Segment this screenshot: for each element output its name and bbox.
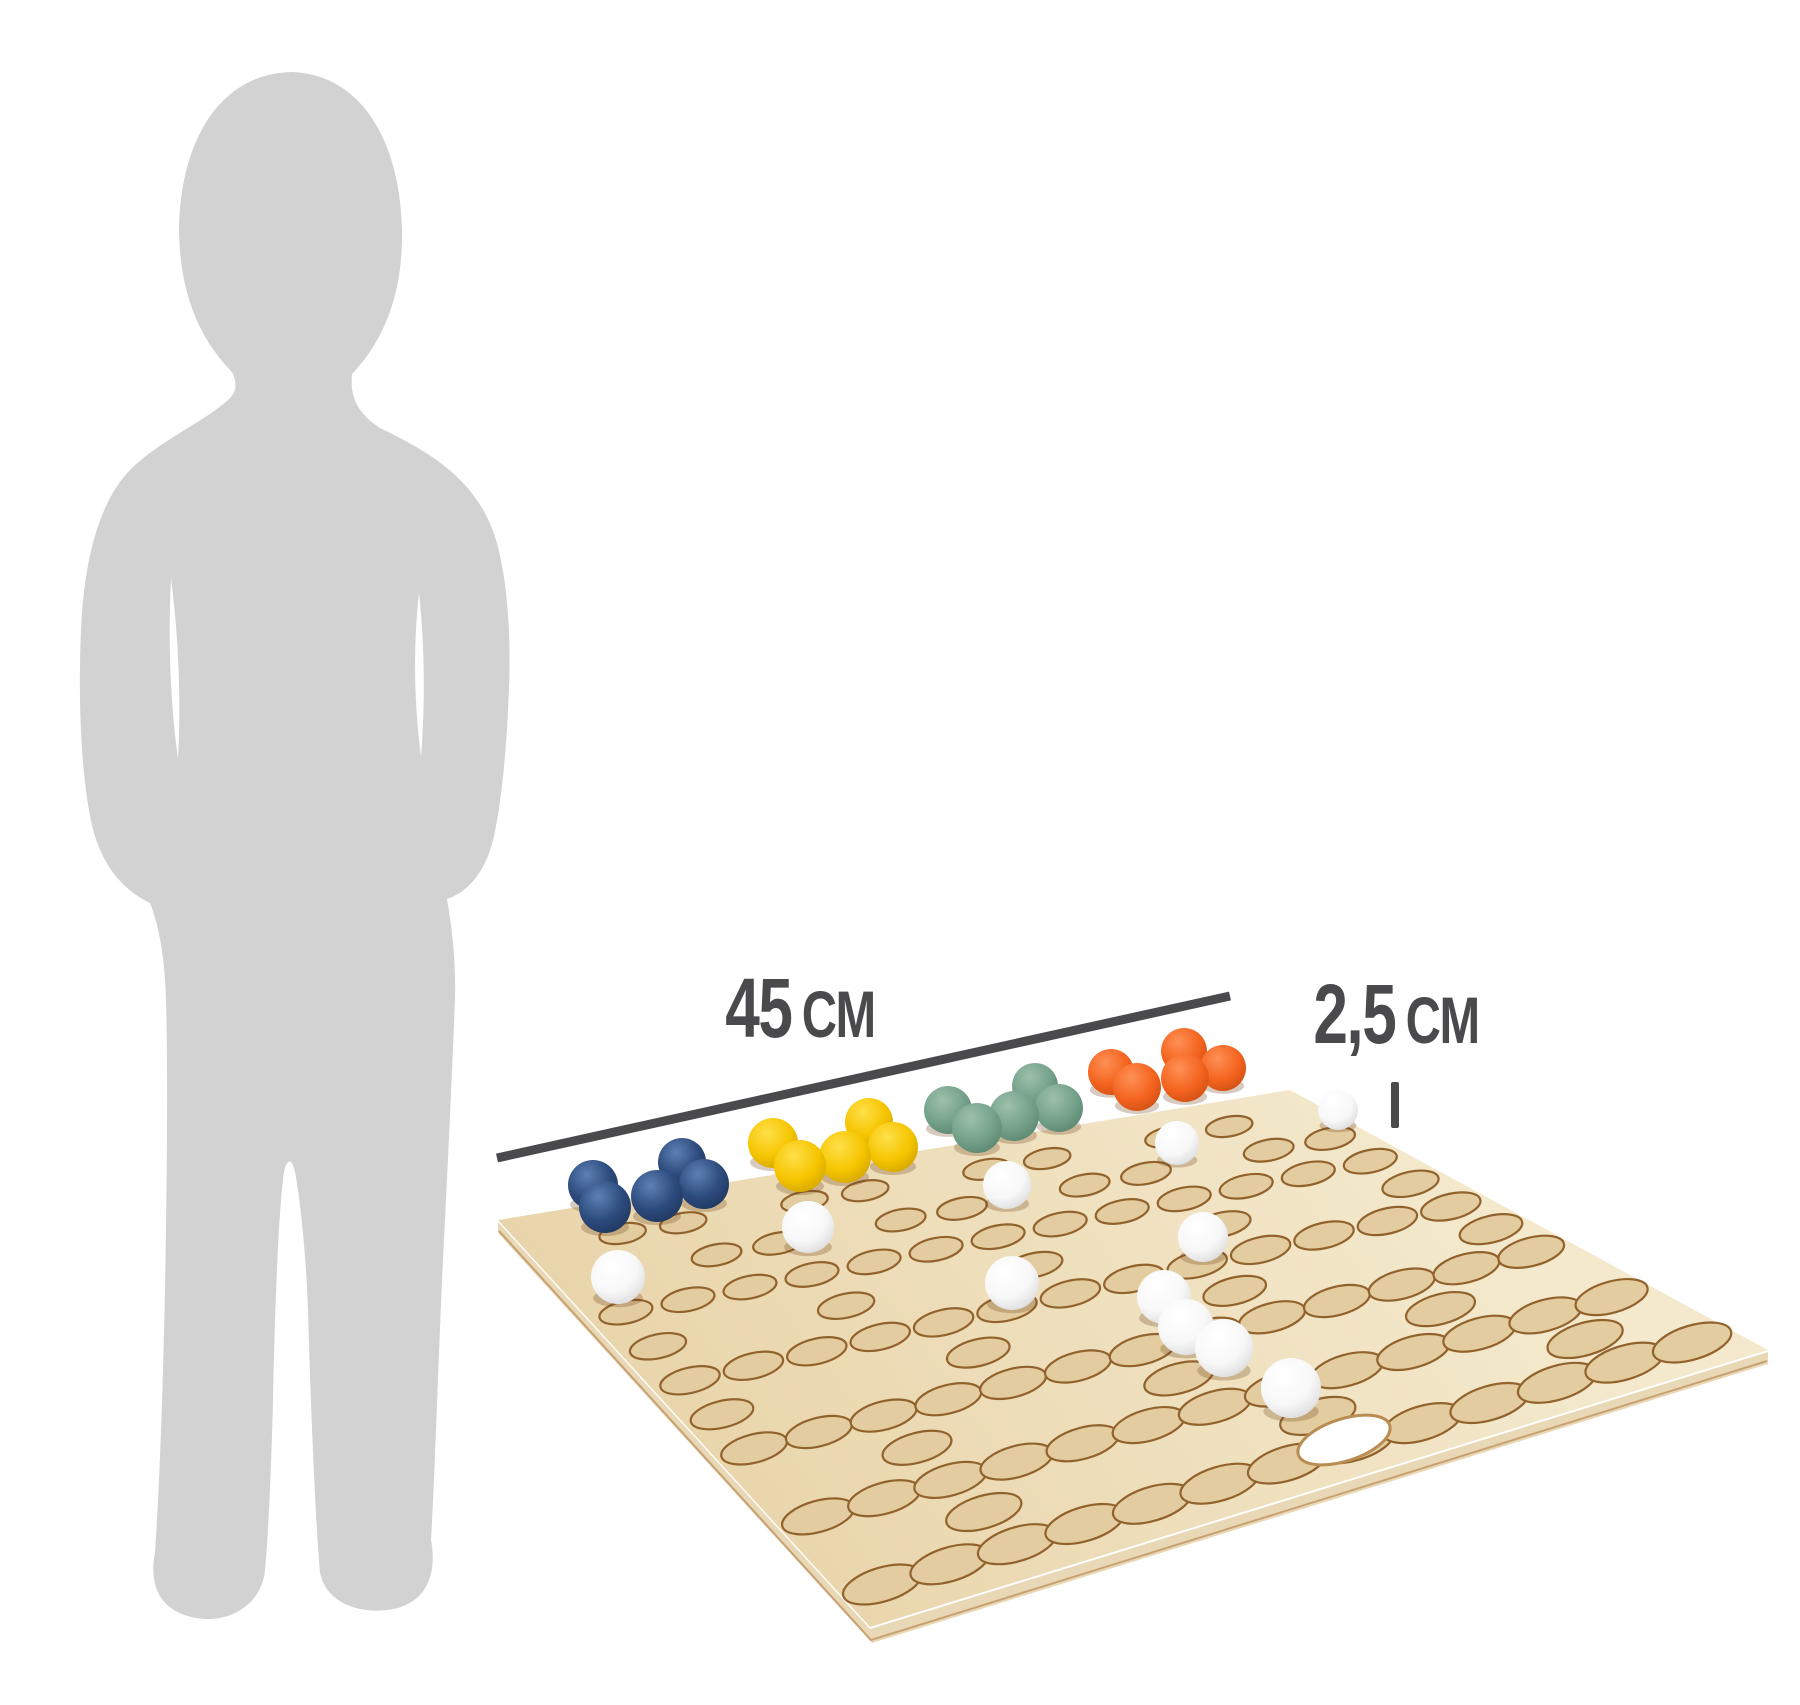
white-ball (591, 1250, 645, 1304)
orange-ball (1161, 1054, 1209, 1102)
child-silhouette (80, 72, 510, 1619)
yellow-ball (819, 1131, 871, 1183)
blue-ball (679, 1159, 729, 1209)
hole-size-label: 2,5CM (1313, 967, 1478, 1061)
hole-size-value: 2,5 (1313, 967, 1396, 1061)
white-ball (985, 1256, 1039, 1310)
child-silhouette-group (80, 72, 510, 1619)
white-ball (782, 1201, 834, 1253)
white-ball (1155, 1121, 1199, 1165)
yellow-ball (774, 1140, 826, 1192)
hole-size-tick (1391, 1082, 1399, 1128)
white-ball (1195, 1319, 1253, 1377)
white-ball (1318, 1090, 1358, 1130)
board-width-label: 45CM (725, 961, 875, 1055)
white-ball (983, 1161, 1031, 1209)
product-photo: 45CM 2,5CM (0, 0, 1800, 1705)
board-width-value: 45 (725, 961, 792, 1055)
blue-ball (579, 1181, 631, 1233)
board-width-unit: CM (802, 978, 875, 1052)
green-ball (1035, 1084, 1083, 1132)
white-ball (1178, 1212, 1228, 1262)
white-ball (1261, 1358, 1321, 1418)
yellow-ball (868, 1122, 918, 1172)
green-ball (952, 1103, 1002, 1153)
hole-size-unit: CM (1406, 984, 1479, 1058)
orange-ball (1113, 1063, 1161, 1111)
blue-ball (631, 1170, 683, 1222)
